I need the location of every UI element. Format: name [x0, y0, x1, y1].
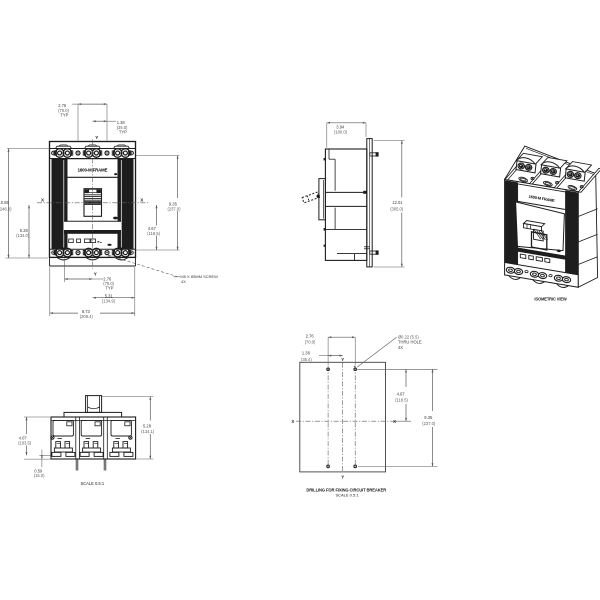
svg-text:(134.0): (134.0) [16, 233, 30, 238]
svg-text:(237.0): (237.0) [422, 421, 436, 426]
svg-text:(305.0): (305.0) [390, 207, 404, 212]
svg-text:4.67: 4.67 [397, 391, 406, 396]
svg-text:(15.0): (15.0) [34, 473, 45, 478]
svg-text:(209.4): (209.4) [80, 314, 94, 319]
svg-text:THRU HOLE: THRU HOLE [398, 340, 422, 345]
svg-text:12.01: 12.01 [392, 200, 403, 205]
svg-text:X: X [291, 419, 294, 424]
svg-text:10.85: 10.85 [0, 200, 9, 205]
svg-text:(134.1): (134.1) [141, 429, 155, 434]
svg-text:TYP: TYP [60, 112, 68, 117]
svg-text:5.28: 5.28 [143, 423, 152, 428]
svg-text:4X: 4X [181, 279, 186, 284]
svg-text:1600-M FRAME: 1600-M FRAME [78, 168, 108, 173]
svg-text:TYP: TYP [119, 129, 127, 134]
svg-text:DRILLING FOR FIXING CIRCUIT BR: DRILLING FOR FIXING CIRCUIT BREAKER [306, 487, 386, 492]
svg-text:Y: Y [341, 474, 344, 479]
svg-text:X: X [393, 419, 396, 424]
svg-text:(70.0): (70.0) [305, 339, 316, 344]
svg-text:1.38: 1.38 [302, 350, 311, 355]
svg-text:SCALE 0.5:1: SCALE 0.5:1 [335, 493, 359, 498]
svg-text:(248.0): (248.0) [0, 207, 12, 212]
svg-text:TYP: TYP [106, 286, 114, 291]
svg-text:(100.0): (100.0) [334, 130, 348, 135]
svg-text:Y: Y [341, 357, 344, 362]
svg-text:ISOMETRIC VIEW: ISOMETRIC VIEW [534, 296, 567, 301]
svg-text:M5 X 85MM SCREW: M5 X 85MM SCREW [180, 274, 218, 279]
svg-text:SCALE 0.5:1: SCALE 0.5:1 [80, 481, 104, 486]
svg-text:2.76: 2.76 [306, 334, 315, 339]
svg-text:(237.0): (237.0) [168, 206, 182, 211]
svg-text:9.35: 9.35 [424, 415, 433, 420]
svg-text:(134.9): (134.9) [102, 299, 116, 304]
svg-text:(35.4): (35.4) [301, 357, 312, 362]
svg-text:(103.5): (103.5) [18, 440, 32, 445]
svg-text:(118.5): (118.5) [147, 231, 160, 236]
svg-text:4X: 4X [398, 345, 403, 350]
svg-text:(118.5): (118.5) [395, 398, 408, 403]
svg-text:Y: Y [94, 272, 97, 277]
svg-text:Y: Y [95, 135, 98, 140]
